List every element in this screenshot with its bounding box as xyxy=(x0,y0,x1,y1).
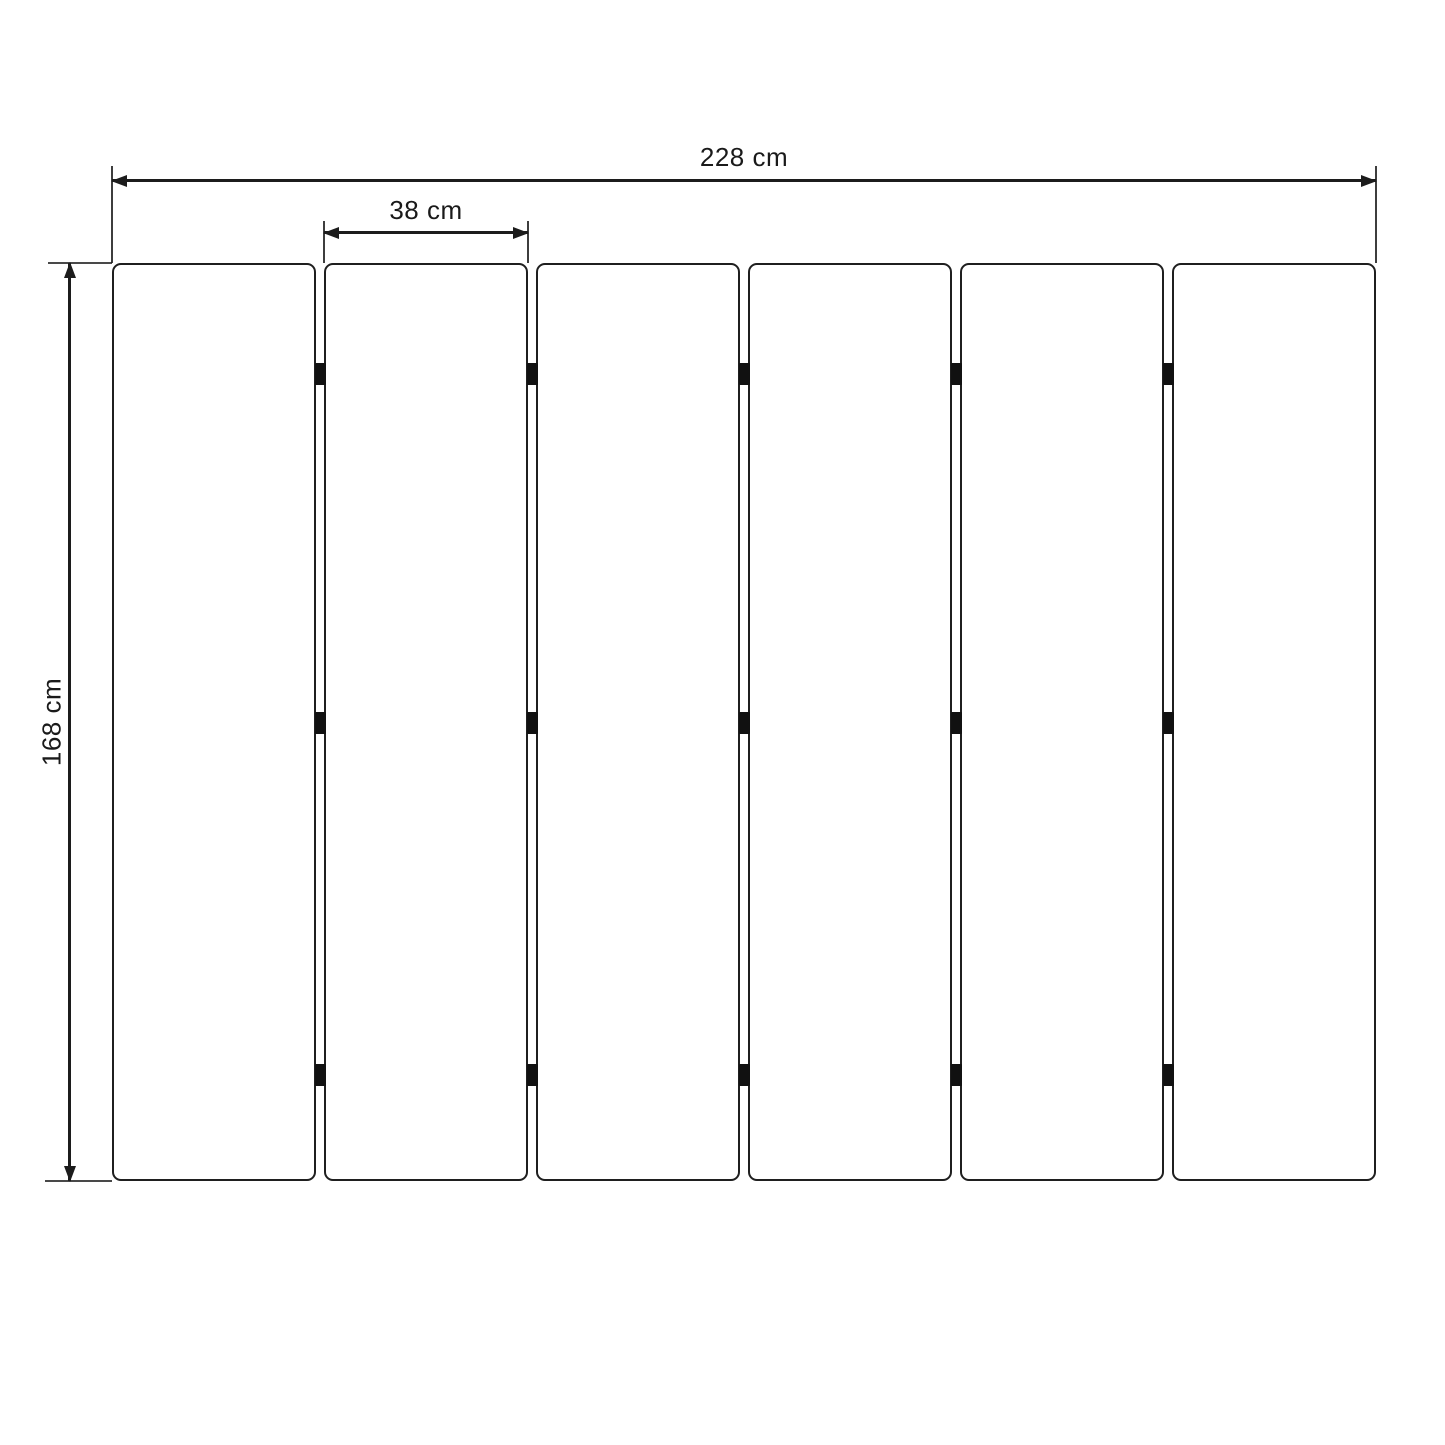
panel-connector-gap5-row3 xyxy=(1163,1064,1174,1086)
panel-connector-gap3-row3 xyxy=(739,1064,750,1086)
panel-4 xyxy=(748,263,952,1181)
panel-1 xyxy=(112,263,316,1181)
dimension-line-total-width xyxy=(112,179,1376,182)
dimension-line-height xyxy=(68,263,71,1181)
diagram-canvas: 228 cm 38 cm 168 cm xyxy=(0,0,1445,1445)
arrow-right-icon xyxy=(513,227,529,239)
dimension-line-panel-width xyxy=(324,231,528,234)
dimension-label-total-width: 228 cm xyxy=(700,142,788,173)
arrow-up-icon xyxy=(64,262,76,278)
panel-connector-gap4-row3 xyxy=(951,1064,962,1086)
panel-connector-gap1-row2 xyxy=(315,712,326,734)
arrow-left-icon xyxy=(111,175,127,187)
panel-connector-gap1-row3 xyxy=(315,1064,326,1086)
panel-connector-gap2-row2 xyxy=(527,712,538,734)
panel-connector-gap1-row1 xyxy=(315,363,326,385)
dimension-label-height: 168 cm xyxy=(37,678,68,766)
panel-connector-gap5-row1 xyxy=(1163,363,1174,385)
panel-3 xyxy=(536,263,740,1181)
panel-5 xyxy=(960,263,1164,1181)
panel-connector-gap4-row1 xyxy=(951,363,962,385)
panel-connector-gap3-row1 xyxy=(739,363,750,385)
arrow-down-icon xyxy=(64,1166,76,1182)
panel-connector-gap2-row1 xyxy=(527,363,538,385)
panel-6 xyxy=(1172,263,1376,1181)
panel-connector-gap5-row2 xyxy=(1163,712,1174,734)
extension-line-height-bottom xyxy=(45,1180,112,1182)
panel-connector-gap3-row2 xyxy=(739,712,750,734)
arrow-left-icon xyxy=(323,227,339,239)
extension-line-height-top xyxy=(48,262,112,264)
dimension-label-panel-width: 38 cm xyxy=(389,195,462,226)
panel-connector-gap2-row3 xyxy=(527,1064,538,1086)
panel-2 xyxy=(324,263,528,1181)
panel-connector-gap4-row2 xyxy=(951,712,962,734)
arrow-right-icon xyxy=(1361,175,1377,187)
